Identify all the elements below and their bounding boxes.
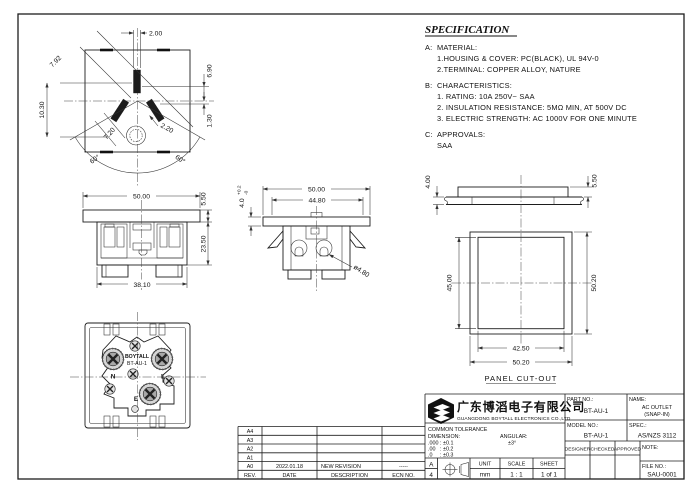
dim-2-20: 2.20 [159,122,174,134]
checked-label: CHECKED [591,447,615,453]
screw-boss-right [316,240,332,256]
spec-c-label: C: [425,130,433,139]
rev-row-a2: A2 [247,447,254,453]
spec-b-label: B: [425,81,432,90]
tolerance-block: COMMON TOLERANCE DIMENSION: ANGULAR: .00… [428,427,528,459]
dim-7-20: 7.20 [103,127,117,142]
dim-4-0: 4.0 [239,198,246,208]
terminal-screw-neutral [103,349,124,370]
part-no-value: BT-AU-1 [584,408,609,415]
revision-table: A4 A3 A2 A1 A0 2022.01.18 NEW REVISION -… [238,427,425,480]
name-label: NAME: [629,397,646,403]
dim-23-50: 23.50 [201,235,208,252]
name-value-line2: (SNAP-IN) [644,412,670,418]
spec-c1: SAA [437,141,452,150]
dim-50-20-bottom: 50.20 [512,360,529,367]
unit-value: mm [480,472,491,479]
sheet-label: SHEET [540,462,559,468]
company-name-en: GUANGDONG BOYTALL ELECTRONICS CO.,LTD [457,416,571,422]
back-brand-marking: BOYTALL [125,354,150,360]
model-no-label: MODEL NO.: [567,423,599,429]
left-pin-slot [111,99,129,122]
dim-42-50: 42.50 [512,346,529,353]
panel-cutout-view: 4.00 5.50 45.00 50.20 42.50 50.20 [425,174,599,383]
rev-row-a0-ecn: ----- [399,464,408,470]
dim-4-00-panel: 4.00 [425,175,432,188]
tolerance-title: COMMON TOLERANCE [428,427,488,433]
spec-value: AS/NZS 3112 [638,433,677,440]
company-logo [428,398,454,424]
dim-50-00-side: 50.00 [308,187,325,194]
angle-left-60: 60° [88,153,101,166]
rev-row-a0-date: 2022.01.18 [276,464,303,470]
note-label: NOTE: [642,445,658,451]
dim-4-0-tol-minus: -0 [244,190,250,195]
spec-b2: 2. INSULATION RESISTANCE: 5MΩ MIN, AT 50… [437,103,627,112]
dim-5-50-panel: 5.50 [592,174,599,187]
terminal-screw-live [152,349,173,370]
dim-6-90: 6.90 [207,64,214,77]
format-strip: A 4 UNIT mm SCALE 1 : 1 SHEET 1 of 1 [429,462,559,480]
side-view: 50.00 44.80 4.0 +0.2 -0 ø4.80 [237,185,371,293]
spec-label: SPEC.: [629,423,647,429]
rev-header-description: DESCRIPTION [331,473,368,479]
spec-b-heading: CHARACTERISTICS: [437,81,512,90]
spec-a-heading: MATERIAL: [437,43,477,52]
spec-b1: 1. RATING: 10A 250V~ SAA [437,92,535,101]
rev-header-ecn: ECN NO. [392,473,414,479]
dim-dia-4-80: ø4.80 [352,264,371,279]
back-model-marking: BT-AU-1 [127,361,147,367]
front-view: 50.00 5.50 23.50 38.10 [83,192,212,291]
spec-a-label: A: [425,43,432,52]
tolerance-dimension-label: DIMENSION: [428,434,460,440]
dim-38-10: 38.10 [133,282,150,289]
approved-label: APPROVED [614,447,642,453]
panel-cutout-caption: PANEL CUT-OUT [485,374,558,383]
part-no-label: PART NO.: [567,397,593,403]
spec-c-heading: APPROVALS: [437,130,485,139]
rev-header-rev: REV. [244,473,256,479]
back-view: BOYTALL BT-AU-1 N L E [70,312,206,440]
paper-size-letter: A [429,462,434,469]
rev-row-a3: A3 [247,438,254,444]
terminal-screw-earth [140,384,161,405]
scale-label: SCALE [508,462,526,468]
file-no-value: SAU-0001 [647,472,677,479]
specification-block: SPECIFICATION A: MATERIAL: 1.HOUSING & C… [425,24,637,150]
unit-label: UNIT [479,462,492,468]
third-angle-projection-icon [443,463,469,477]
dim-50-00-front: 50.00 [133,194,150,201]
dim-7-92: 7.92 [49,55,63,69]
tolerance-angular-value: ±3° [508,441,516,447]
tolerance-row-3: .0 : ±0.3 [428,453,453,459]
company-block: 广东博滔电子有限公司 GUANGDONG BOYTALL ELECTRONICS… [428,398,585,424]
engineering-drawing-sheet: 2.00 7.92 6.90 1.30 10.30 7.20 2.20 60° … [0,0,700,494]
dim-5-50-front: 5.50 [201,192,208,205]
dim-50-20-right: 50.20 [591,274,598,291]
face-view: 2.00 7.92 6.90 1.30 10.30 7.20 2.20 60° … [39,28,214,186]
dim-4-0-tol-plus: +0.2 [237,185,243,195]
center-marking-circle [127,126,146,145]
spec-b3: 3. ELECTRIC STRENGTH: AC 1000V FOR ONE M… [437,114,637,123]
dim-45-00: 45.00 [447,274,454,291]
rev-header-date: DATE [283,473,297,479]
model-no-value: BT-AU-1 [584,433,609,440]
rev-row-a1: A1 [247,455,254,461]
rev-row-a0: A0 [247,464,254,470]
dim-44-80: 44.80 [308,198,325,205]
name-value-line1: AC OUTLET [642,405,673,411]
spec-a2: 2.TERMINAL: COPPER ALLOY, NATURE [437,65,581,74]
dim-1-30: 1.30 [207,114,214,127]
rev-row-a0-description: NEW REVISION [321,464,361,470]
designer-label: DESIGNER [565,447,591,453]
screw-boss-left [291,240,307,256]
label-live: L [161,374,165,381]
file-no-label: FILE NO.: [642,464,666,470]
spec-a1: 1.HOUSING & COVER: PC(BLACK), UL 94V-0 [437,54,599,63]
sheet-value: 1 of 1 [541,472,557,479]
dim-2-00: 2.00 [149,31,162,38]
label-earth: E [134,396,139,403]
drawing-canvas: 2.00 7.92 6.90 1.30 10.30 7.20 2.20 60° … [0,0,700,494]
spec-title: SPECIFICATION [425,24,510,36]
dim-10-30: 10.30 [39,101,46,118]
company-name-cn: 广东博滔电子有限公司 [457,399,585,414]
tolerance-angular-label: ANGULAR: [500,434,528,440]
label-neutral: N [111,374,116,381]
paper-size-number: 4 [429,472,433,479]
right-pin-slot [146,99,164,122]
rev-row-a4: A4 [247,429,254,435]
scale-value: 1 : 1 [510,472,523,479]
